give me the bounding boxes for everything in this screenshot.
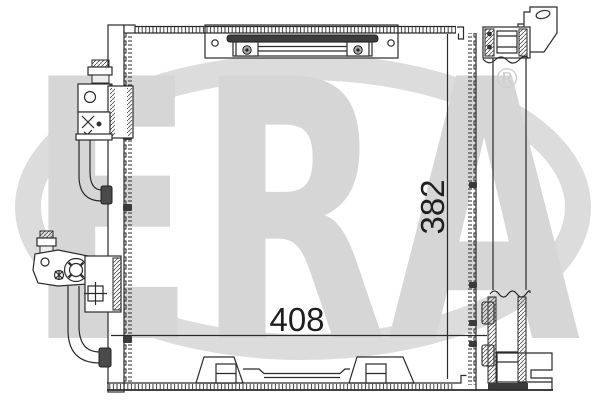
technical-drawing-canvas: ERA ® — [0, 0, 600, 400]
right-fin-serration — [468, 33, 476, 385]
dimension-width-label: 408 — [269, 301, 324, 338]
bracket-hole-left — [212, 40, 218, 46]
handle-bar — [227, 35, 378, 42]
dimension-height-label: 382 — [414, 179, 451, 234]
lower-pipe-end-cap — [99, 348, 111, 367]
condenser-drawing: ERA ® — [0, 0, 600, 400]
drier-top-cap — [483, 27, 530, 63]
fitting-port-hole — [85, 92, 96, 103]
registered-trademark-symbol: ® — [493, 62, 521, 95]
drier-clamp-upper — [482, 302, 494, 324]
upper-pipe-end-cap — [101, 186, 112, 204]
bracket-hole-right — [388, 40, 394, 46]
drier-clamp-lower — [482, 345, 494, 366]
left-side-plate — [108, 25, 124, 392]
